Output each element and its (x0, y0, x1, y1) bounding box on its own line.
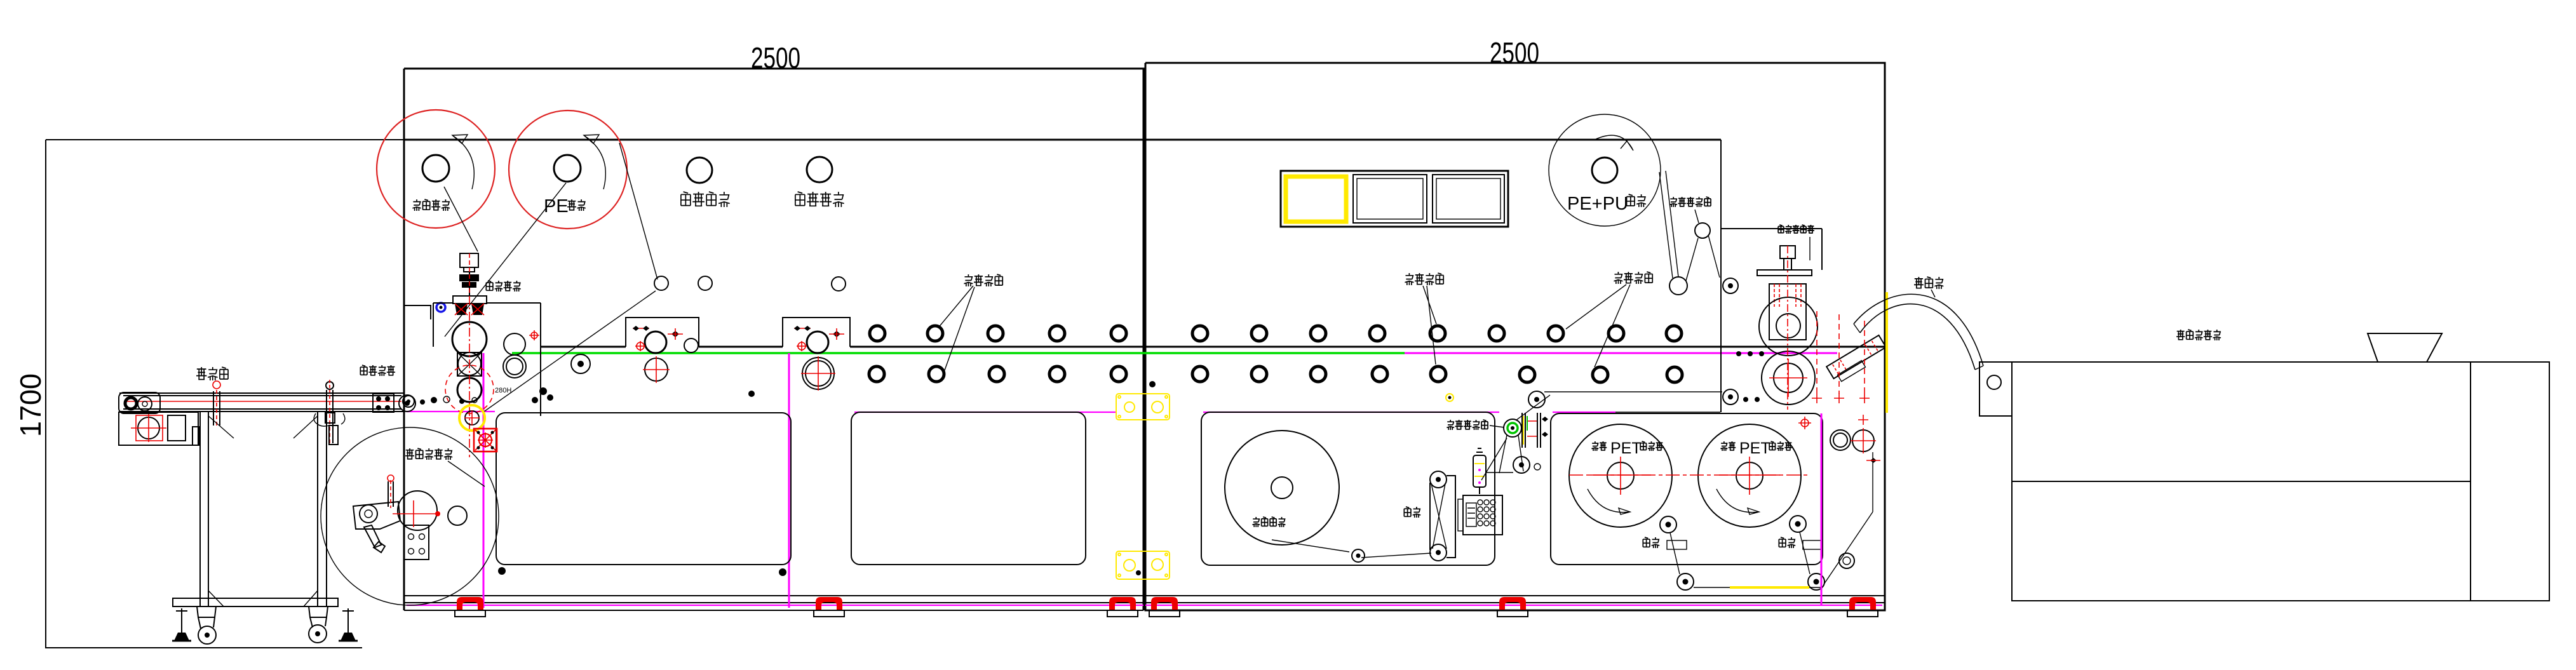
svg-text:280H: 280H (495, 387, 511, 394)
svg-text:PET: PET (1610, 439, 1642, 457)
svg-text:PET: PET (1739, 439, 1770, 457)
svg-text:2500: 2500 (1490, 36, 1539, 69)
svg-text:PE+PU: PE+PU (1567, 194, 1628, 214)
svg-text:2500: 2500 (751, 41, 800, 74)
svg-text:1700: 1700 (14, 373, 47, 437)
